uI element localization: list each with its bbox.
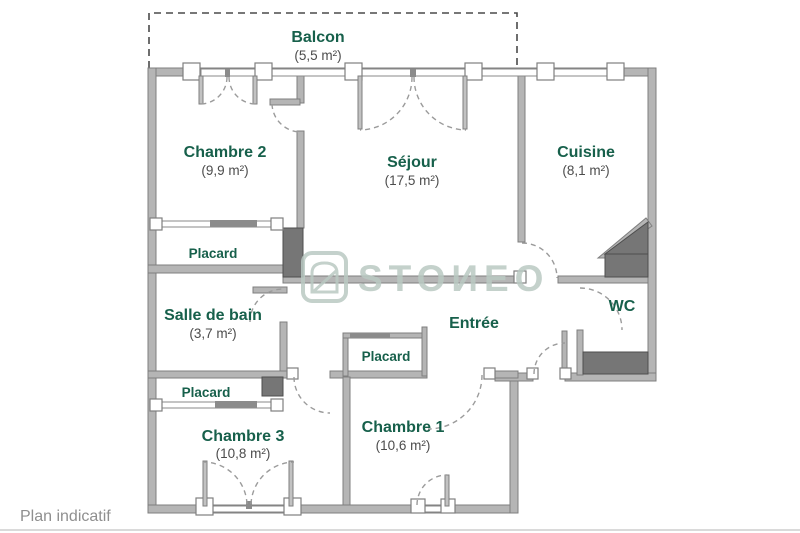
swing-arc bbox=[414, 77, 466, 130]
closet-label-1: Placard bbox=[189, 246, 238, 261]
window-center-tick bbox=[225, 69, 230, 77]
room-area-chambre-1: (10,6 m²) bbox=[376, 438, 431, 453]
window bbox=[554, 69, 607, 76]
plan-disclaimer: Plan indicatif bbox=[20, 508, 111, 525]
sliding-panel bbox=[350, 333, 390, 338]
post bbox=[537, 63, 554, 80]
swing-arc bbox=[272, 104, 300, 132]
room-area-balcon: (5,5 m²) bbox=[294, 48, 341, 63]
closet-wall bbox=[422, 327, 427, 376]
room-area-salle-de-bain: (3,7 m²) bbox=[189, 326, 236, 341]
room-area-chambre-3: (10,8 m²) bbox=[216, 446, 271, 461]
room-area-cuisine: (8,1 m²) bbox=[562, 163, 609, 178]
room-label-entree: Entrée bbox=[449, 315, 499, 332]
room-label-cuisine: Cuisine bbox=[557, 144, 615, 161]
watermark-brand-text: STOИEO bbox=[358, 258, 549, 299]
front-door-leaf bbox=[562, 331, 567, 373]
closet-label-2: Placard bbox=[182, 385, 231, 400]
post bbox=[560, 368, 571, 379]
leaf bbox=[463, 76, 467, 129]
post bbox=[150, 218, 162, 230]
floor-plan-page: Balcon (5,5 m²) Chambre 2 (9,9 m²) Séjou… bbox=[0, 0, 800, 533]
wall bbox=[280, 322, 287, 375]
post bbox=[484, 368, 495, 379]
wall bbox=[510, 371, 518, 513]
swing-arc bbox=[360, 77, 412, 130]
window bbox=[272, 69, 345, 76]
room-area-sejour: (17,5 m²) bbox=[385, 173, 440, 188]
sliding-panel bbox=[215, 401, 257, 408]
swing-arc bbox=[200, 77, 227, 104]
leaf bbox=[445, 475, 449, 506]
room-label-chambre-1: Chambre 1 bbox=[362, 419, 445, 436]
room-label-salle-de-bain: Salle de bain bbox=[164, 307, 262, 324]
post bbox=[527, 368, 538, 379]
open-door-leaf bbox=[270, 99, 300, 105]
sliding-panel bbox=[210, 220, 257, 227]
window bbox=[482, 69, 537, 76]
closet-label-3: Placard bbox=[362, 349, 411, 364]
wall bbox=[297, 131, 304, 228]
leaf bbox=[203, 461, 207, 506]
room-label-balcon: Balcon bbox=[291, 29, 344, 46]
leaf bbox=[199, 76, 203, 104]
post bbox=[183, 63, 200, 80]
duct bbox=[605, 254, 648, 277]
room-label-wc: WC bbox=[609, 298, 636, 315]
leaf bbox=[253, 76, 257, 104]
post bbox=[255, 63, 272, 80]
room-area-chambre-2: (9,9 m²) bbox=[201, 163, 248, 178]
post bbox=[271, 218, 283, 230]
closet-wall bbox=[343, 333, 348, 376]
wall bbox=[148, 68, 156, 513]
wall bbox=[343, 377, 350, 505]
swing-arc bbox=[294, 377, 330, 413]
leaf bbox=[358, 76, 362, 129]
service-ducts bbox=[262, 222, 648, 396]
leaf bbox=[289, 461, 293, 506]
post bbox=[287, 368, 298, 379]
room-label-chambre-3: Chambre 3 bbox=[202, 428, 285, 445]
post bbox=[411, 499, 425, 513]
wall bbox=[148, 265, 285, 273]
room-label-chambre-2: Chambre 2 bbox=[184, 144, 267, 161]
duct bbox=[583, 352, 648, 374]
duct bbox=[262, 377, 283, 396]
duct bbox=[283, 228, 303, 277]
floor-plan-svg: Balcon (5,5 m²) Chambre 2 (9,9 m²) Séjou… bbox=[0, 0, 800, 533]
post bbox=[607, 63, 624, 80]
wall bbox=[577, 330, 583, 375]
window-center-tick bbox=[410, 69, 416, 77]
wall bbox=[518, 76, 525, 242]
duct bbox=[605, 222, 648, 254]
post bbox=[150, 399, 162, 411]
swing-arc bbox=[229, 77, 256, 104]
post bbox=[271, 399, 283, 411]
room-label-sejour: Séjour bbox=[387, 154, 437, 171]
post bbox=[465, 63, 482, 80]
